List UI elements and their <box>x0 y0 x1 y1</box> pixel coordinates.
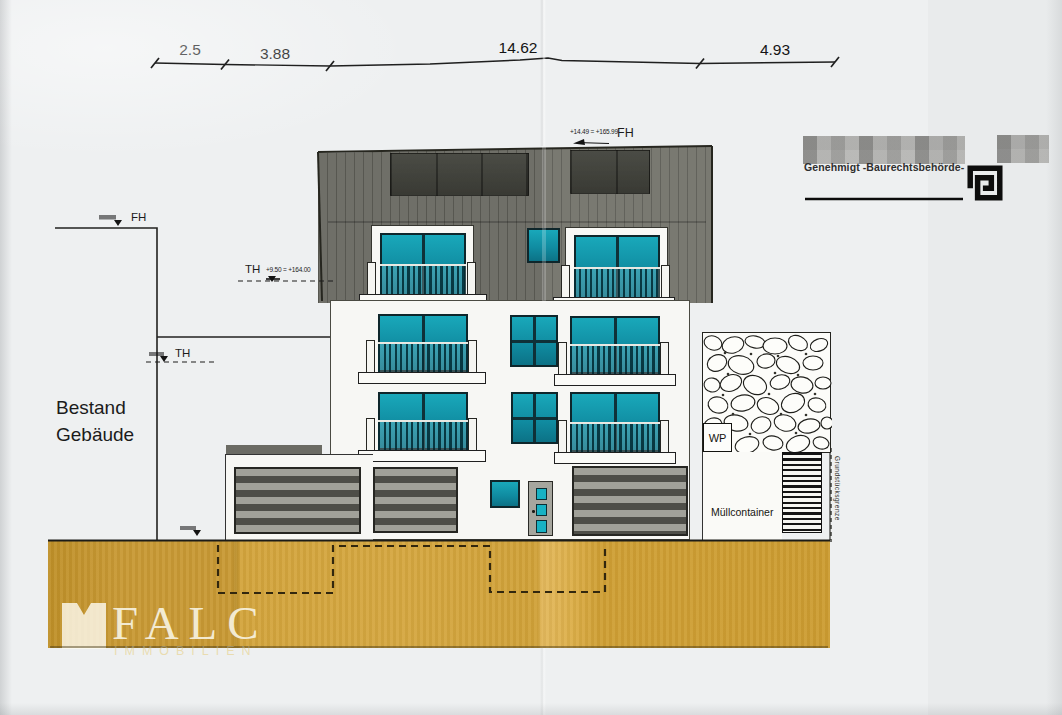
solar-panel-left <box>390 153 529 196</box>
garage-door-right <box>572 466 688 536</box>
paper-tint-right-column <box>928 0 1062 715</box>
window-mullion <box>513 417 556 420</box>
door-glass-pane <box>536 488 547 500</box>
attic-balcony-railing-right <box>574 267 660 299</box>
fh-roof-value: +14.49 = +165.99 <box>570 128 618 135</box>
dim-2-5: 2.5 <box>160 41 220 59</box>
redacted-corner-area <box>997 135 1049 163</box>
railing-post <box>661 265 670 301</box>
slatted-fence <box>782 452 822 533</box>
garage-door-left <box>373 467 458 533</box>
attic-balcony-railing-left <box>380 264 466 296</box>
attic-panel-joint <box>328 221 706 223</box>
floor1-railing-left <box>378 420 468 450</box>
window-mullion <box>512 340 556 343</box>
entry-door <box>528 481 553 536</box>
fold-crease-top <box>540 0 546 146</box>
paper-edge-right <box>1046 0 1062 715</box>
door-glass-pane <box>536 504 547 516</box>
railing-post <box>660 342 669 376</box>
railing-post <box>468 340 477 374</box>
approval-label: Genehmigt -Baurechtsbehörde- <box>804 161 964 173</box>
fh-roof-label: FH <box>617 126 634 140</box>
floor2-railing-left <box>378 342 468 372</box>
redacted-stamp-area <box>803 136 965 164</box>
paper-highlight-topleft <box>0 0 420 160</box>
fold-crease-bottom <box>540 648 546 715</box>
wp-box: WP <box>703 423 732 452</box>
attic-window-small-center <box>527 228 560 263</box>
property-boundary-label: Grundstücksgrenze <box>834 456 841 536</box>
garage-door-annex <box>234 467 361 534</box>
paper-edge-bottom <box>0 703 1062 715</box>
door-glass-pane <box>536 520 547 533</box>
railing-post <box>660 420 669 454</box>
door-handle <box>532 510 535 513</box>
scanned-elevation-drawing: FALC IMMOBILIEN <box>0 0 1062 715</box>
watermark-brand: FALC <box>112 596 269 650</box>
floor2-railing-right <box>570 344 660 374</box>
existing-building-label: Bestand Gebäude <box>56 394 134 448</box>
floor1-balcony-slab-left <box>358 450 486 462</box>
wp-label: WP <box>709 432 727 444</box>
dim-4-93: 4.93 <box>745 41 805 59</box>
th-existing-label: TH <box>175 347 190 359</box>
railing-post <box>366 418 375 452</box>
floor2-balcony-slab-left <box>358 372 486 384</box>
authority-logo <box>966 164 1004 202</box>
dim-14-62: 14.62 <box>485 39 551 57</box>
muellcontainer-label: Müllcontainer <box>711 506 773 518</box>
watermark-subtitle: IMMOBILIEN <box>114 644 258 658</box>
dim-3-88: 3.88 <box>245 45 305 63</box>
floor2-window-center <box>510 315 558 367</box>
annex-parapet-cap <box>226 445 322 454</box>
fh-existing-label: FH <box>131 211 146 223</box>
floor1-window-center <box>511 392 558 444</box>
bin-storage-wall <box>702 452 782 540</box>
th-upper-value: +9.50 = +164.00 <box>266 266 311 273</box>
railing-post <box>558 342 567 376</box>
railing-post <box>366 340 375 374</box>
railing-post <box>558 420 567 454</box>
railing-post <box>367 262 376 298</box>
paper-edge-left <box>0 0 12 715</box>
solar-panel-right <box>570 150 650 194</box>
floor1-balcony-slab-right <box>554 452 676 464</box>
th-upper-label: TH <box>245 263 260 275</box>
railing-post <box>467 262 476 298</box>
entry-window <box>490 480 520 508</box>
floor1-railing-right <box>570 422 660 452</box>
railing-post <box>468 418 477 452</box>
railing-post <box>561 265 570 301</box>
floor2-balcony-slab-right <box>554 374 676 386</box>
existing-building-line1: Bestand <box>56 394 134 421</box>
existing-building-line2: Gebäude <box>56 421 134 448</box>
